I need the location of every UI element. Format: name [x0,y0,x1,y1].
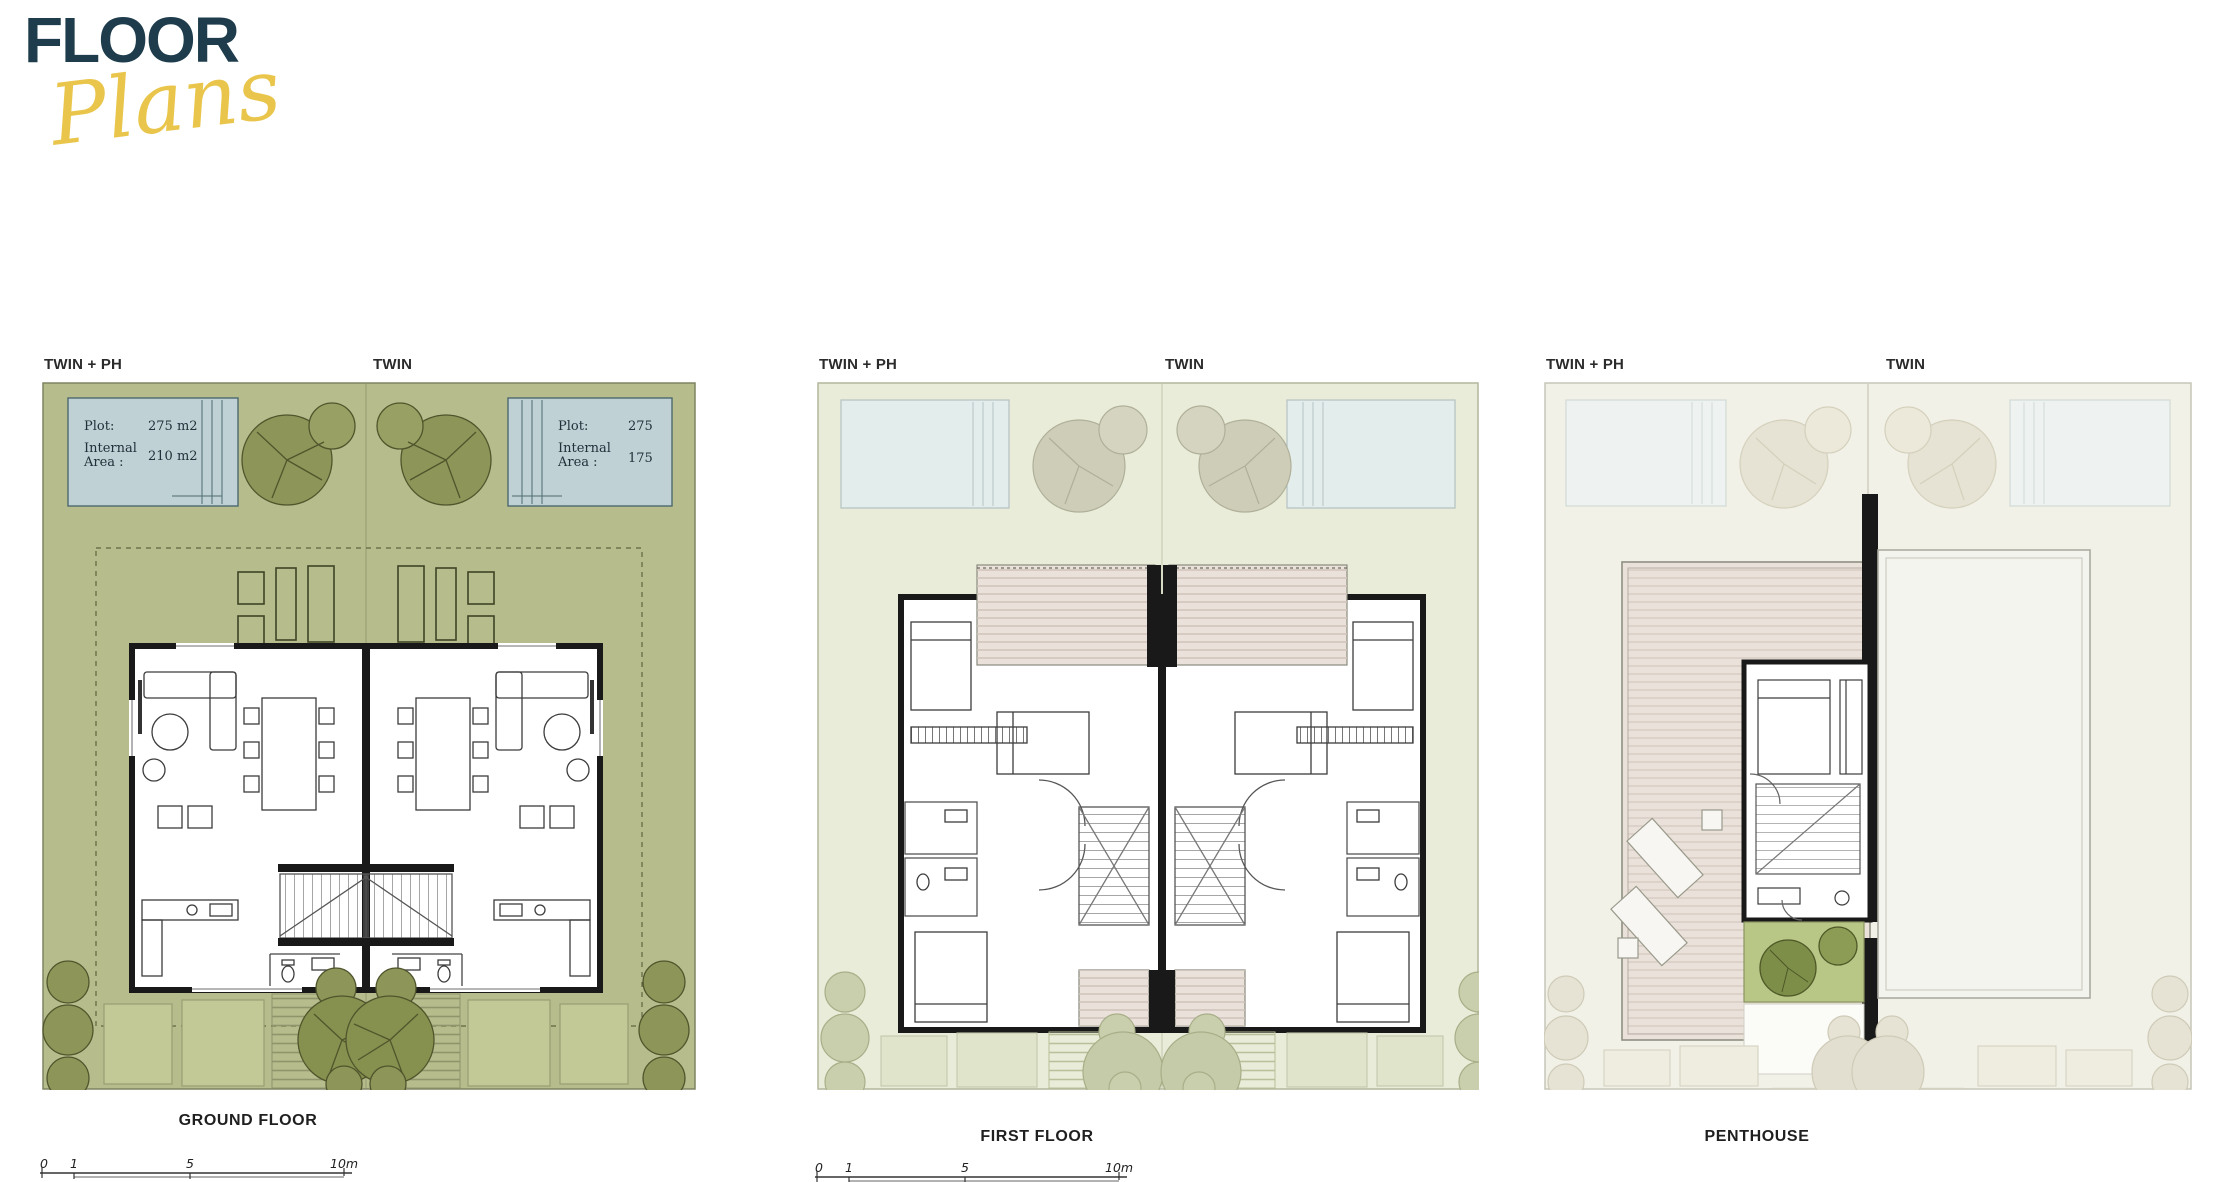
pool-left-plot-value: 275 m2 [148,419,198,434]
pool-right-plot-value: 275 [628,419,653,434]
penthouse-caption: PENTHOUSE [1705,1128,1810,1146]
penthouse-plan [1544,382,2192,1090]
pool-left-faded [841,400,1009,508]
first-floor-label-twin: TWIN [1165,356,1204,373]
scale-tick-1: 1 [70,1156,78,1171]
pool-right-plot-label: Plot: [558,419,588,434]
ground-floor-plan: Plot: 275 m2 Internal Area : 210 m2 Plot… [42,382,696,1090]
scale-tick-5: 5 [961,1160,969,1175]
scale-tick-0: 0 [815,1160,823,1175]
ground-floor-caption: GROUND FLOOR [179,1112,318,1130]
stair-wall [278,864,372,872]
pool-right-area-label-1: Internal [558,441,611,456]
pool-left-pale [1566,400,1726,506]
pool-right-faded [1287,400,1455,508]
scale-tick-1: 1 [845,1160,853,1175]
pool-right-area-value: 175 [628,451,653,466]
pool-left-plot-label: Plot: [84,419,114,434]
pool-left-area-value: 210 m2 [148,449,198,464]
ground-floor-label-twin: TWIN [373,356,412,373]
first-floor-scalebar: 0 1 5 10m [813,1158,1143,1182]
twin-roof [1878,550,2090,998]
brand-logo: FLOOR Plans [24,8,364,218]
floor-plans-sheet: FLOOR Plans TWIN + PH TWIN Plot: [0,0,2214,1182]
side-table [1702,810,1722,830]
ground-floor-label-twin-ph: TWIN + PH [44,356,122,373]
pool-left: Plot: 275 m2 Internal Area : 210 m2 [68,398,238,506]
side-table [1618,938,1638,958]
first-floor-caption: FIRST FLOOR [980,1128,1093,1146]
pool-left-area-label-1: Internal [84,441,137,456]
penthouse-label-twin: TWIN [1886,356,1925,373]
pool-right-area-label-2: Area : [557,455,598,470]
ground-floor-scalebar: 0 1 5 10m [38,1154,368,1180]
penthouse-label-twin-ph: TWIN + PH [1546,356,1624,373]
first-floor-plan [817,382,1479,1090]
penthouse-room [1744,662,1870,920]
first-floor-label-twin-ph: TWIN + PH [819,356,897,373]
pool-left-area-label-2: Area : [83,455,124,470]
scale-tick-0: 0 [40,1156,48,1171]
pool-right: Plot: 275 Internal Area : 175 [508,398,672,506]
scale-tick-5: 5 [186,1156,194,1171]
pool-right-pale [2010,400,2170,506]
